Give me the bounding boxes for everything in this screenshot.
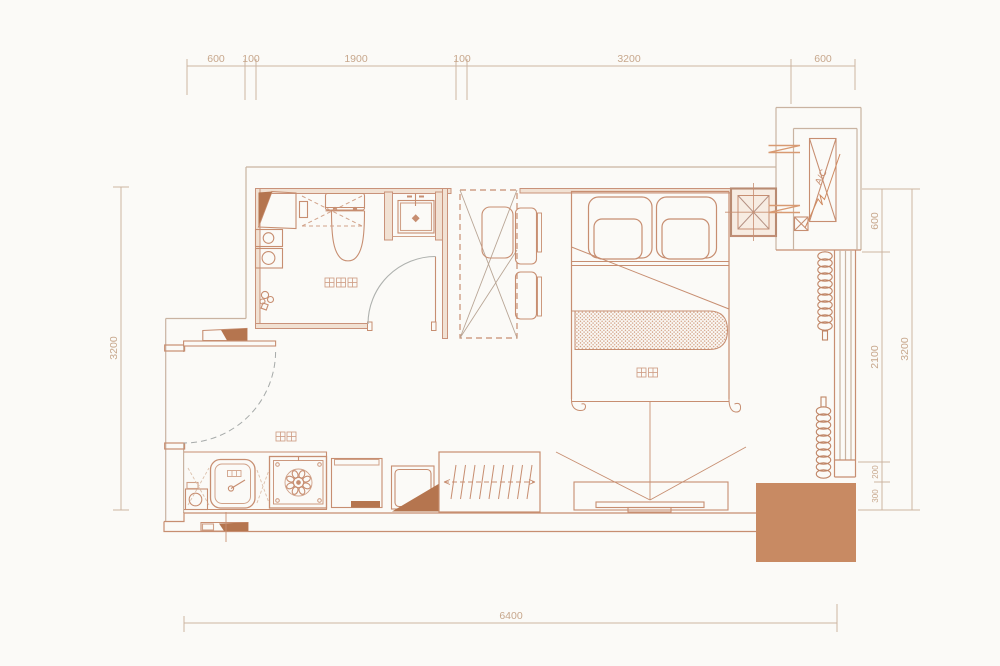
svg-text:3200: 3200: [108, 336, 120, 360]
svg-text:6400: 6400: [499, 610, 523, 622]
svg-text:3200: 3200: [617, 53, 641, 65]
svg-text:3200: 3200: [899, 337, 911, 361]
svg-text:100: 100: [453, 53, 471, 65]
svg-text:2100: 2100: [869, 345, 881, 369]
svg-text:600: 600: [814, 53, 832, 65]
svg-text:600: 600: [869, 212, 881, 230]
svg-text:300: 300: [871, 489, 880, 503]
svg-text:600: 600: [207, 53, 225, 65]
svg-text:100: 100: [242, 53, 260, 65]
svg-text:200: 200: [871, 465, 880, 479]
svg-text:1900: 1900: [344, 53, 368, 65]
svg-text:A/C: A/C: [813, 168, 830, 187]
